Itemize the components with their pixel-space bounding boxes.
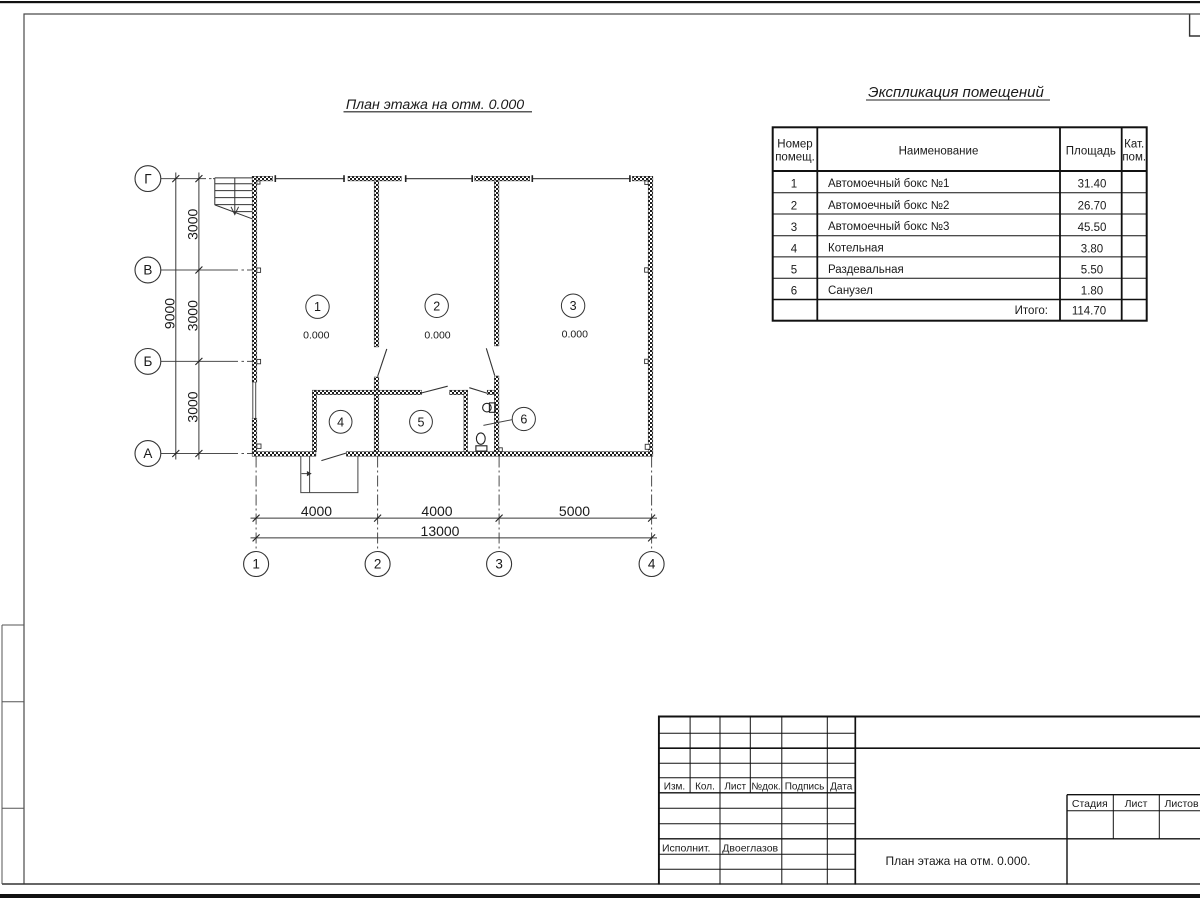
- svg-text:Котельная: Котельная: [828, 243, 884, 255]
- svg-text:3000: 3000: [184, 391, 200, 422]
- svg-text:3: 3: [570, 299, 577, 313]
- svg-text:Подпись: Подпись: [785, 781, 825, 792]
- svg-text:4: 4: [648, 557, 656, 572]
- svg-text:0.000: 0.000: [424, 330, 450, 342]
- svg-text:9000: 9000: [162, 298, 178, 329]
- svg-text:4000: 4000: [301, 503, 332, 519]
- svg-text:Исполнит.: Исполнит.: [662, 842, 710, 854]
- svg-text:Лист: Лист: [724, 781, 746, 792]
- svg-text:1.80: 1.80: [1081, 286, 1103, 298]
- svg-text:Наименование: Наименование: [899, 145, 979, 157]
- svg-text:3000: 3000: [184, 300, 200, 331]
- svg-text:План этажа на отм. 0.000: План этажа на отм. 0.000: [346, 97, 524, 113]
- svg-text:Автомоечный бокс №3: Автомоечный бокс №3: [828, 221, 949, 233]
- svg-text:45.50: 45.50: [1078, 222, 1107, 234]
- svg-text:4: 4: [791, 243, 798, 255]
- svg-text:1: 1: [252, 557, 260, 572]
- svg-text:Двоеглазов: Двоеглазов: [722, 842, 778, 854]
- svg-text:План этажа на отм. 0.000.: План этажа на отм. 0.000.: [885, 854, 1030, 868]
- svg-text:6: 6: [520, 413, 527, 427]
- svg-text:Дата: Дата: [830, 781, 853, 792]
- svg-text:Раздевальная: Раздевальная: [828, 264, 904, 276]
- svg-text:31.40: 31.40: [1078, 179, 1107, 191]
- svg-text:Г: Г: [144, 171, 152, 186]
- svg-text:Б: Б: [143, 354, 152, 369]
- svg-text:6: 6: [791, 286, 797, 298]
- svg-text:0.000: 0.000: [562, 329, 588, 341]
- svg-text:5.50: 5.50: [1081, 265, 1103, 277]
- svg-text:3.80: 3.80: [1081, 243, 1103, 255]
- svg-text:пом.: пом.: [1122, 152, 1146, 164]
- svg-text:26.70: 26.70: [1078, 201, 1107, 213]
- svg-text:Автомоечный бокс №1: Автомоечный бокс №1: [828, 178, 949, 190]
- svg-text:5: 5: [791, 265, 797, 277]
- svg-text:2: 2: [433, 299, 440, 313]
- svg-text:3: 3: [791, 222, 797, 234]
- svg-text:Автомоечный бокс №2: Автомоечный бокс №2: [828, 200, 949, 212]
- svg-text:помещ.: помещ.: [775, 152, 815, 164]
- svg-text:114.70: 114.70: [1072, 306, 1106, 318]
- svg-text:13000: 13000: [421, 523, 460, 539]
- svg-text:№док.: №док.: [751, 781, 780, 792]
- svg-text:Экспликация помещений: Экспликация помещений: [868, 84, 1044, 101]
- svg-text:Листов: Листов: [1164, 798, 1199, 810]
- svg-text:2: 2: [791, 201, 797, 213]
- svg-text:Номер: Номер: [777, 139, 812, 151]
- svg-text:3: 3: [495, 557, 503, 572]
- svg-text:5000: 5000: [559, 503, 590, 519]
- svg-text:Санузел: Санузел: [828, 285, 873, 297]
- svg-text:Итого:: Итого:: [1015, 305, 1048, 317]
- svg-text:Кол.: Кол.: [695, 781, 715, 792]
- svg-text:4: 4: [337, 415, 344, 429]
- svg-text:5: 5: [418, 415, 425, 429]
- svg-text:Изм.: Изм.: [664, 781, 685, 792]
- svg-text:0.000: 0.000: [303, 330, 329, 342]
- svg-text:Лист: Лист: [1125, 798, 1148, 810]
- svg-text:Стадия: Стадия: [1072, 798, 1108, 810]
- svg-text:В: В: [143, 263, 152, 278]
- svg-text:2: 2: [374, 557, 382, 572]
- svg-text:1: 1: [791, 179, 797, 191]
- svg-text:А: А: [143, 446, 152, 461]
- svg-text:Площадь: Площадь: [1066, 145, 1116, 157]
- svg-text:Кат.: Кат.: [1124, 139, 1144, 151]
- svg-text:1: 1: [314, 300, 321, 314]
- svg-text:3000: 3000: [184, 209, 200, 240]
- svg-text:4000: 4000: [421, 503, 452, 519]
